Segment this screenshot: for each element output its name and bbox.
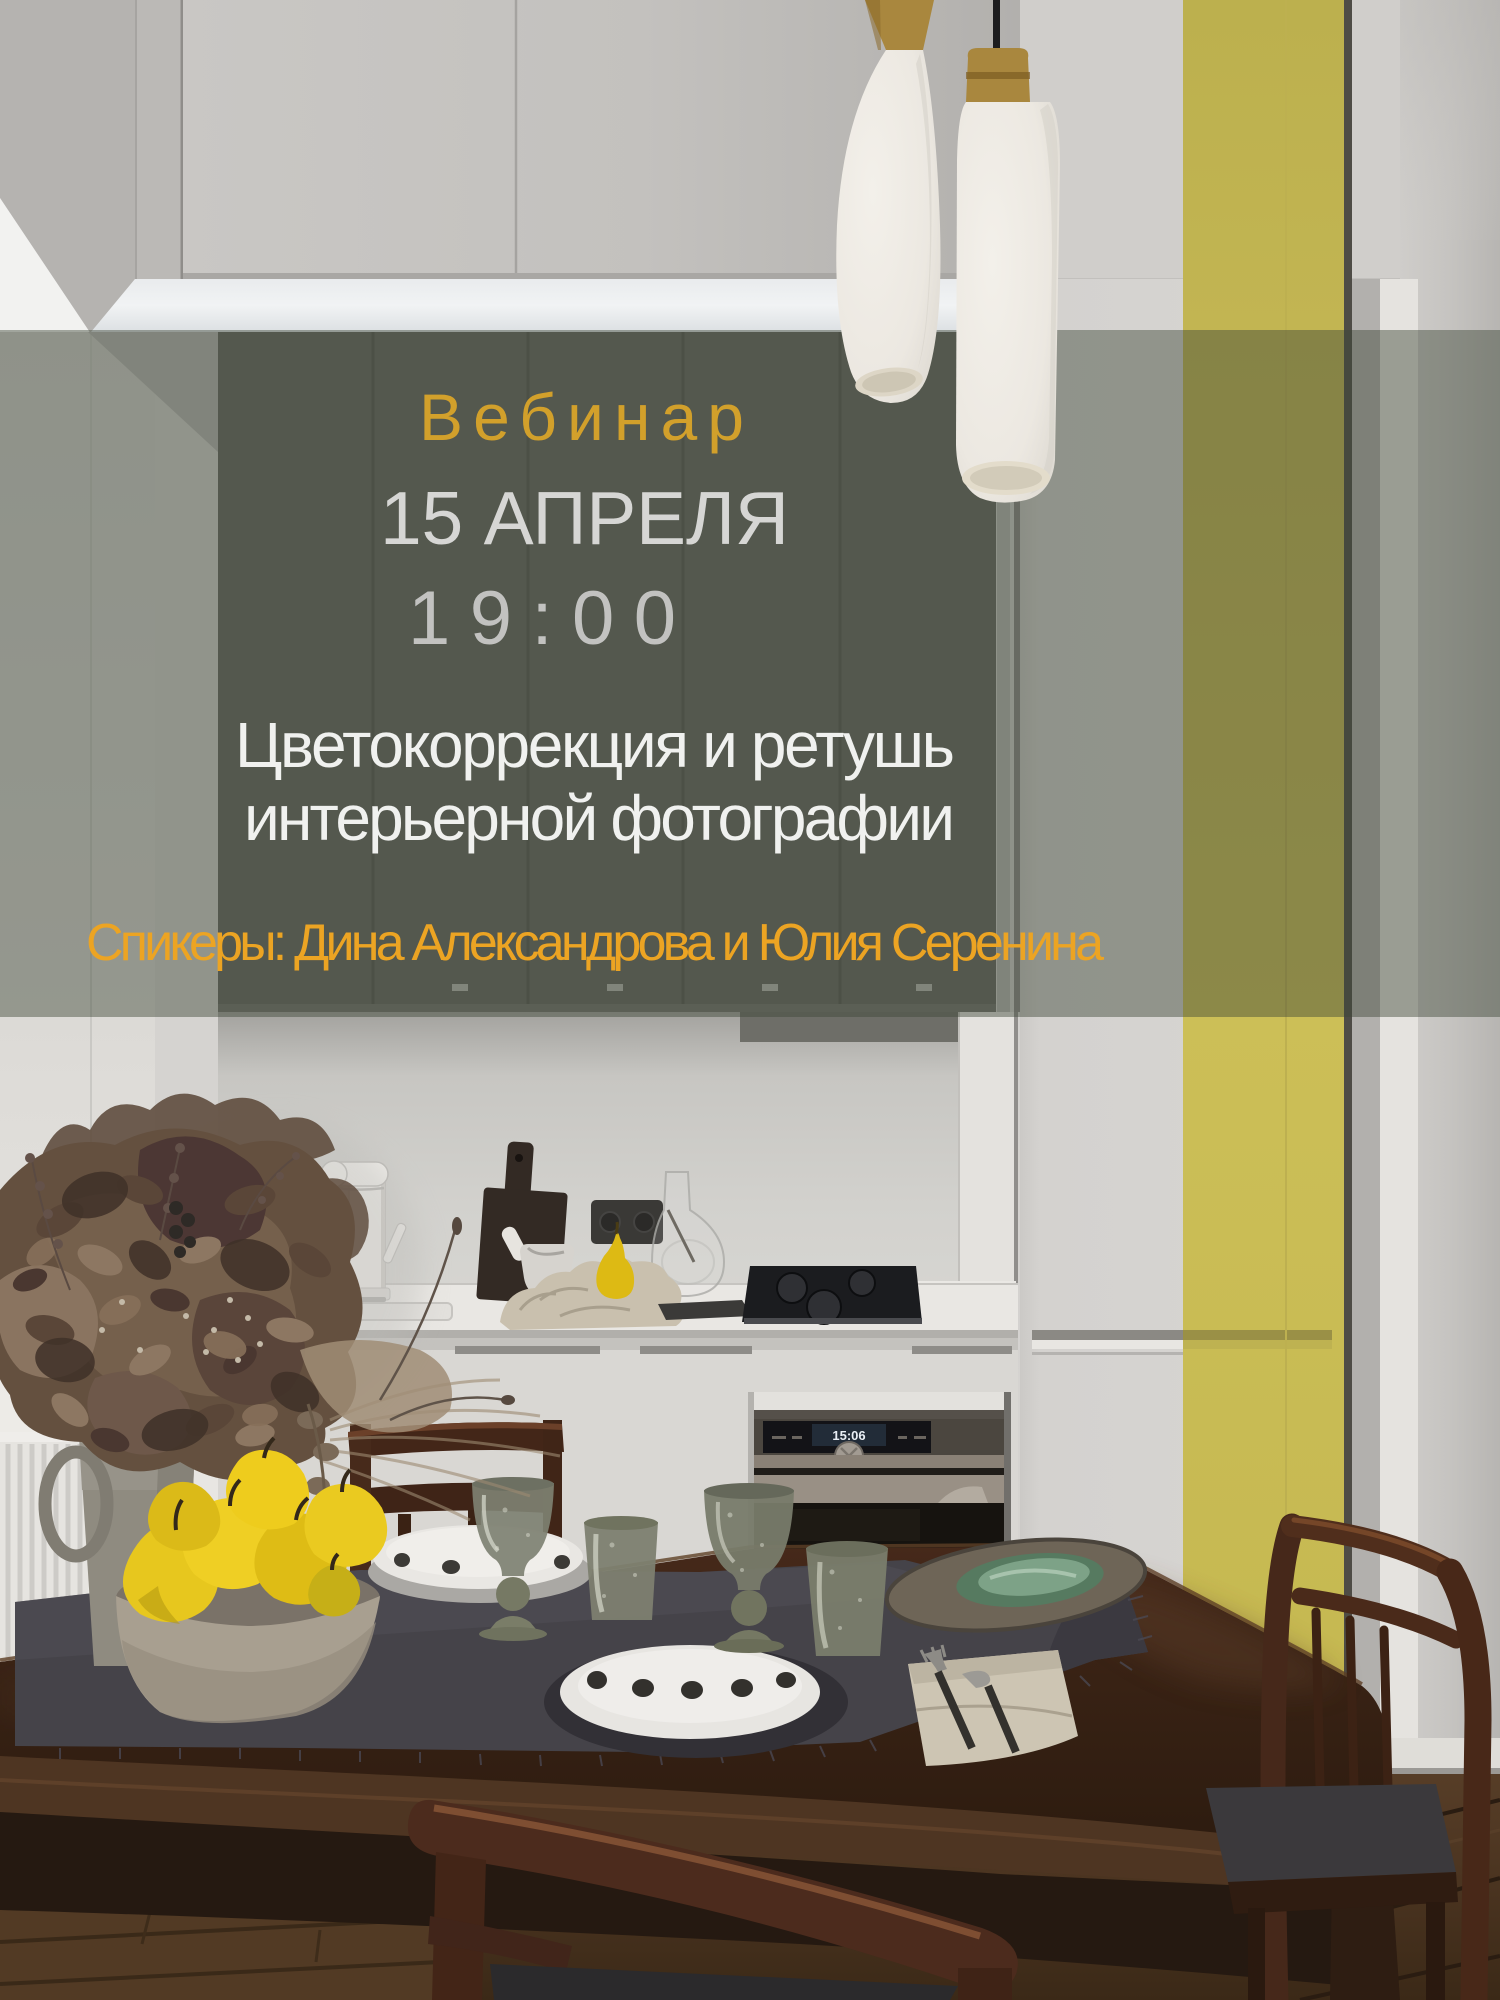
svg-text:Цветокоррекция и ретушь: Цветокоррекция и ретушь (235, 709, 955, 781)
svg-text:интерьерной фотографии: интерьерной фотографии (244, 782, 955, 854)
svg-text:Спикеры: Дина Александрова и Ю: Спикеры: Дина Александрова и Юлия Серени… (86, 914, 1104, 972)
svg-text:15 АПРЕЛЯ: 15 АПРЕЛЯ (380, 476, 789, 560)
svg-text:15:06: 15:06 (832, 1428, 865, 1443)
svg-text:19:00: 19:00 (408, 576, 676, 661)
